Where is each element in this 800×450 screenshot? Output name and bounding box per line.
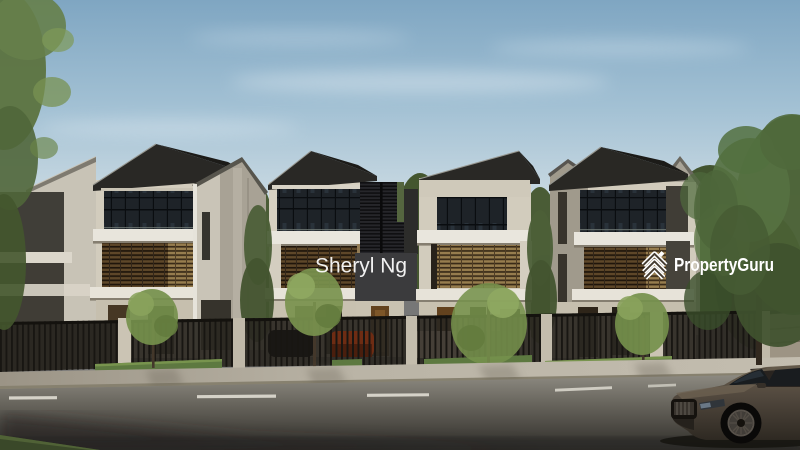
svg-text:Sheryl Ng: Sheryl Ng bbox=[315, 254, 407, 278]
svg-text:PropertyGuru: PropertyGuru bbox=[674, 254, 774, 275]
